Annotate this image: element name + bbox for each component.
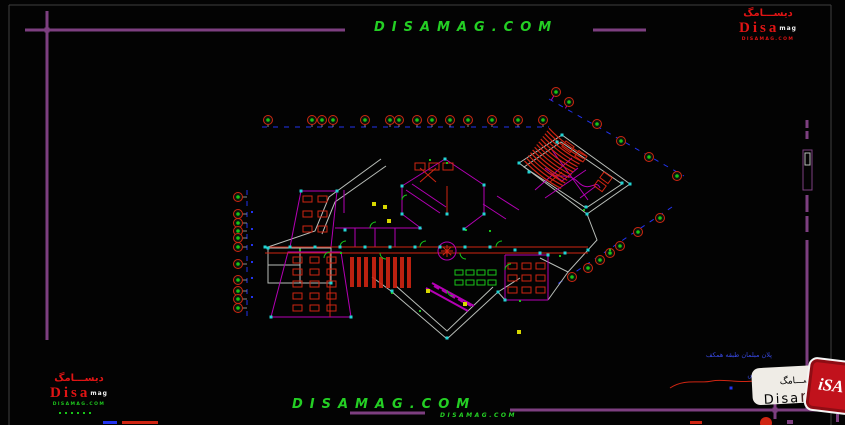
cad-canvas[interactable]: DISAMAG.COM DISAMAG.COM DISAMAG.COM دیسـ… <box>0 0 845 425</box>
grid-col-left <box>234 190 248 316</box>
logo-sub-text: mag <box>779 25 797 32</box>
outline-upper-left <box>268 159 381 247</box>
cube-text: iSA <box>817 375 845 398</box>
wing-west-lower <box>271 252 351 317</box>
lobby-star <box>441 245 453 257</box>
desks-lab <box>455 270 496 285</box>
logo-site-text: DISAMAG.COM <box>50 403 108 408</box>
strip-purple-a <box>787 420 793 424</box>
paper-frame <box>9 5 831 425</box>
strip-red-b <box>148 421 158 424</box>
logo-persian-text: دیســـامگ <box>50 374 108 384</box>
grid-row-top <box>262 116 549 128</box>
logo-top-right: دیســـامگ Disamag DISAMAG.COM <box>739 9 797 43</box>
logo-persian-text: دیســـامگ <box>739 9 797 19</box>
watermark-top: DISAMAG.COM <box>374 20 558 35</box>
watermark-fragment: DISAMAG.COM <box>440 412 517 419</box>
logo-latin-text: Disa <box>739 21 779 36</box>
drawing-svg <box>0 0 845 425</box>
chevron-south-inner <box>396 286 493 331</box>
logo-latin-text: Disa <box>763 391 800 408</box>
isa-cube-logo-icon: iSA <box>803 356 845 416</box>
logo-latin-text: Disa <box>50 386 90 401</box>
dim-labels <box>251 211 253 298</box>
outline-upper-left-inner <box>322 166 386 234</box>
scale-mark <box>730 387 733 390</box>
strip-red-a <box>122 421 148 424</box>
border-node <box>45 28 778 413</box>
logo-site-text: DISAMAG.COM <box>739 38 797 43</box>
strip-red-c <box>690 421 702 424</box>
strip-purple-b <box>836 414 839 422</box>
border-cell <box>803 150 812 190</box>
wing-west-upper <box>290 191 337 247</box>
watermark-bottom: DISAMAG.COM <box>292 397 476 412</box>
desks-east <box>508 263 545 293</box>
stacks-b <box>372 257 411 288</box>
plan-title-text: پلان مبلمان طبقه همکف <box>688 351 772 359</box>
strip-red-blob <box>760 417 772 425</box>
stacks-a <box>350 257 368 287</box>
grid-diag-lower <box>556 207 672 285</box>
strip-blue <box>103 421 117 424</box>
logo-sub-text: mag <box>90 390 108 397</box>
logo-bottom-left: دیســـامگ Disamag DISAMAG.COM <box>50 374 108 408</box>
desks-nw <box>303 196 327 232</box>
strip-green <box>59 412 91 414</box>
stairs <box>426 283 474 311</box>
border-cell-inner <box>805 153 810 165</box>
